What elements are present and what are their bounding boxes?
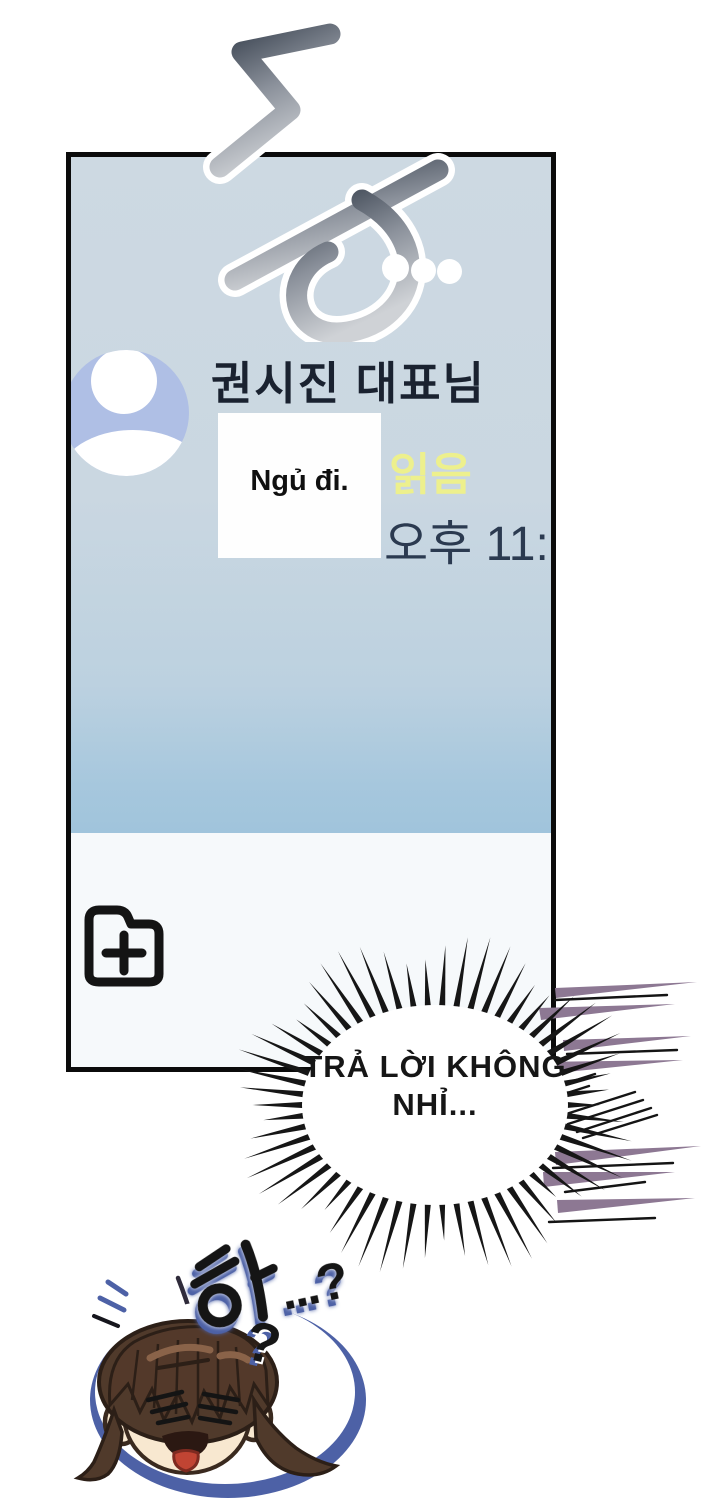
- comic-panel-page: 둥 ... 권시진 대표님 Ngủ đi. 읽음 오후 11:: [0, 0, 720, 1501]
- contact-avatar[interactable]: [66, 350, 189, 476]
- ellipsis-dot: [437, 259, 462, 284]
- person-silhouette-icon: [91, 350, 157, 414]
- burst-line-2: NHỈ...: [300, 1086, 570, 1124]
- chibi-tongue: [174, 1451, 199, 1472]
- sfx-dung-text: 둥: [0, 0, 1, 1]
- sfx-trail-text: ...: [0, 0, 1, 1]
- sfx-ha-text: 하: [0, 0, 1, 1]
- burst-line-1: TRẢ LỜI KHÔNG: [300, 1048, 570, 1086]
- timestamp: 오후 11:: [384, 504, 549, 574]
- contact-name: 권시진 대표님: [211, 347, 486, 412]
- burst-text: TRẢ LỜI KHÔNG NHỈ...: [300, 1048, 570, 1124]
- sfx-dung-calligraphy: [190, 12, 470, 342]
- message-bubble[interactable]: Ngủ đi.: [218, 413, 381, 558]
- sfx-ha-tail: ...?: [275, 1251, 353, 1322]
- add-folder-icon[interactable]: [77, 888, 171, 988]
- person-silhouette-icon: [66, 430, 189, 476]
- ellipsis-dot: [411, 258, 436, 283]
- read-receipt: 읽음: [389, 438, 472, 503]
- ellipsis-dot: [382, 254, 409, 282]
- message-text: Ngủ đi.: [218, 413, 381, 498]
